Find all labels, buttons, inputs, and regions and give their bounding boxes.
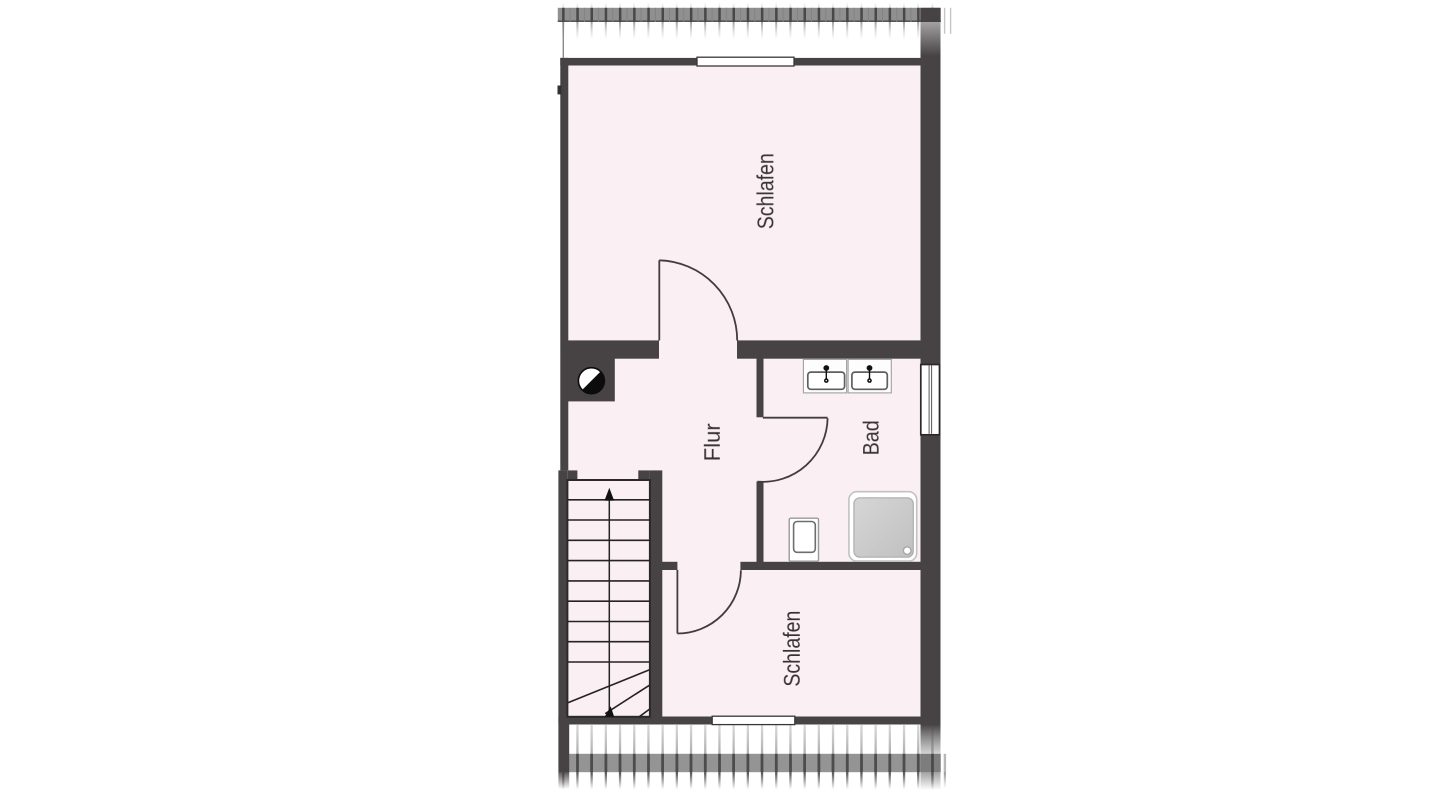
svg-text:Flur: Flur [700, 423, 725, 462]
svg-text:Schlafen: Schlafen [753, 153, 779, 229]
svg-text:Schlafen: Schlafen [779, 611, 805, 687]
svg-text:Bad: Bad [858, 420, 883, 455]
